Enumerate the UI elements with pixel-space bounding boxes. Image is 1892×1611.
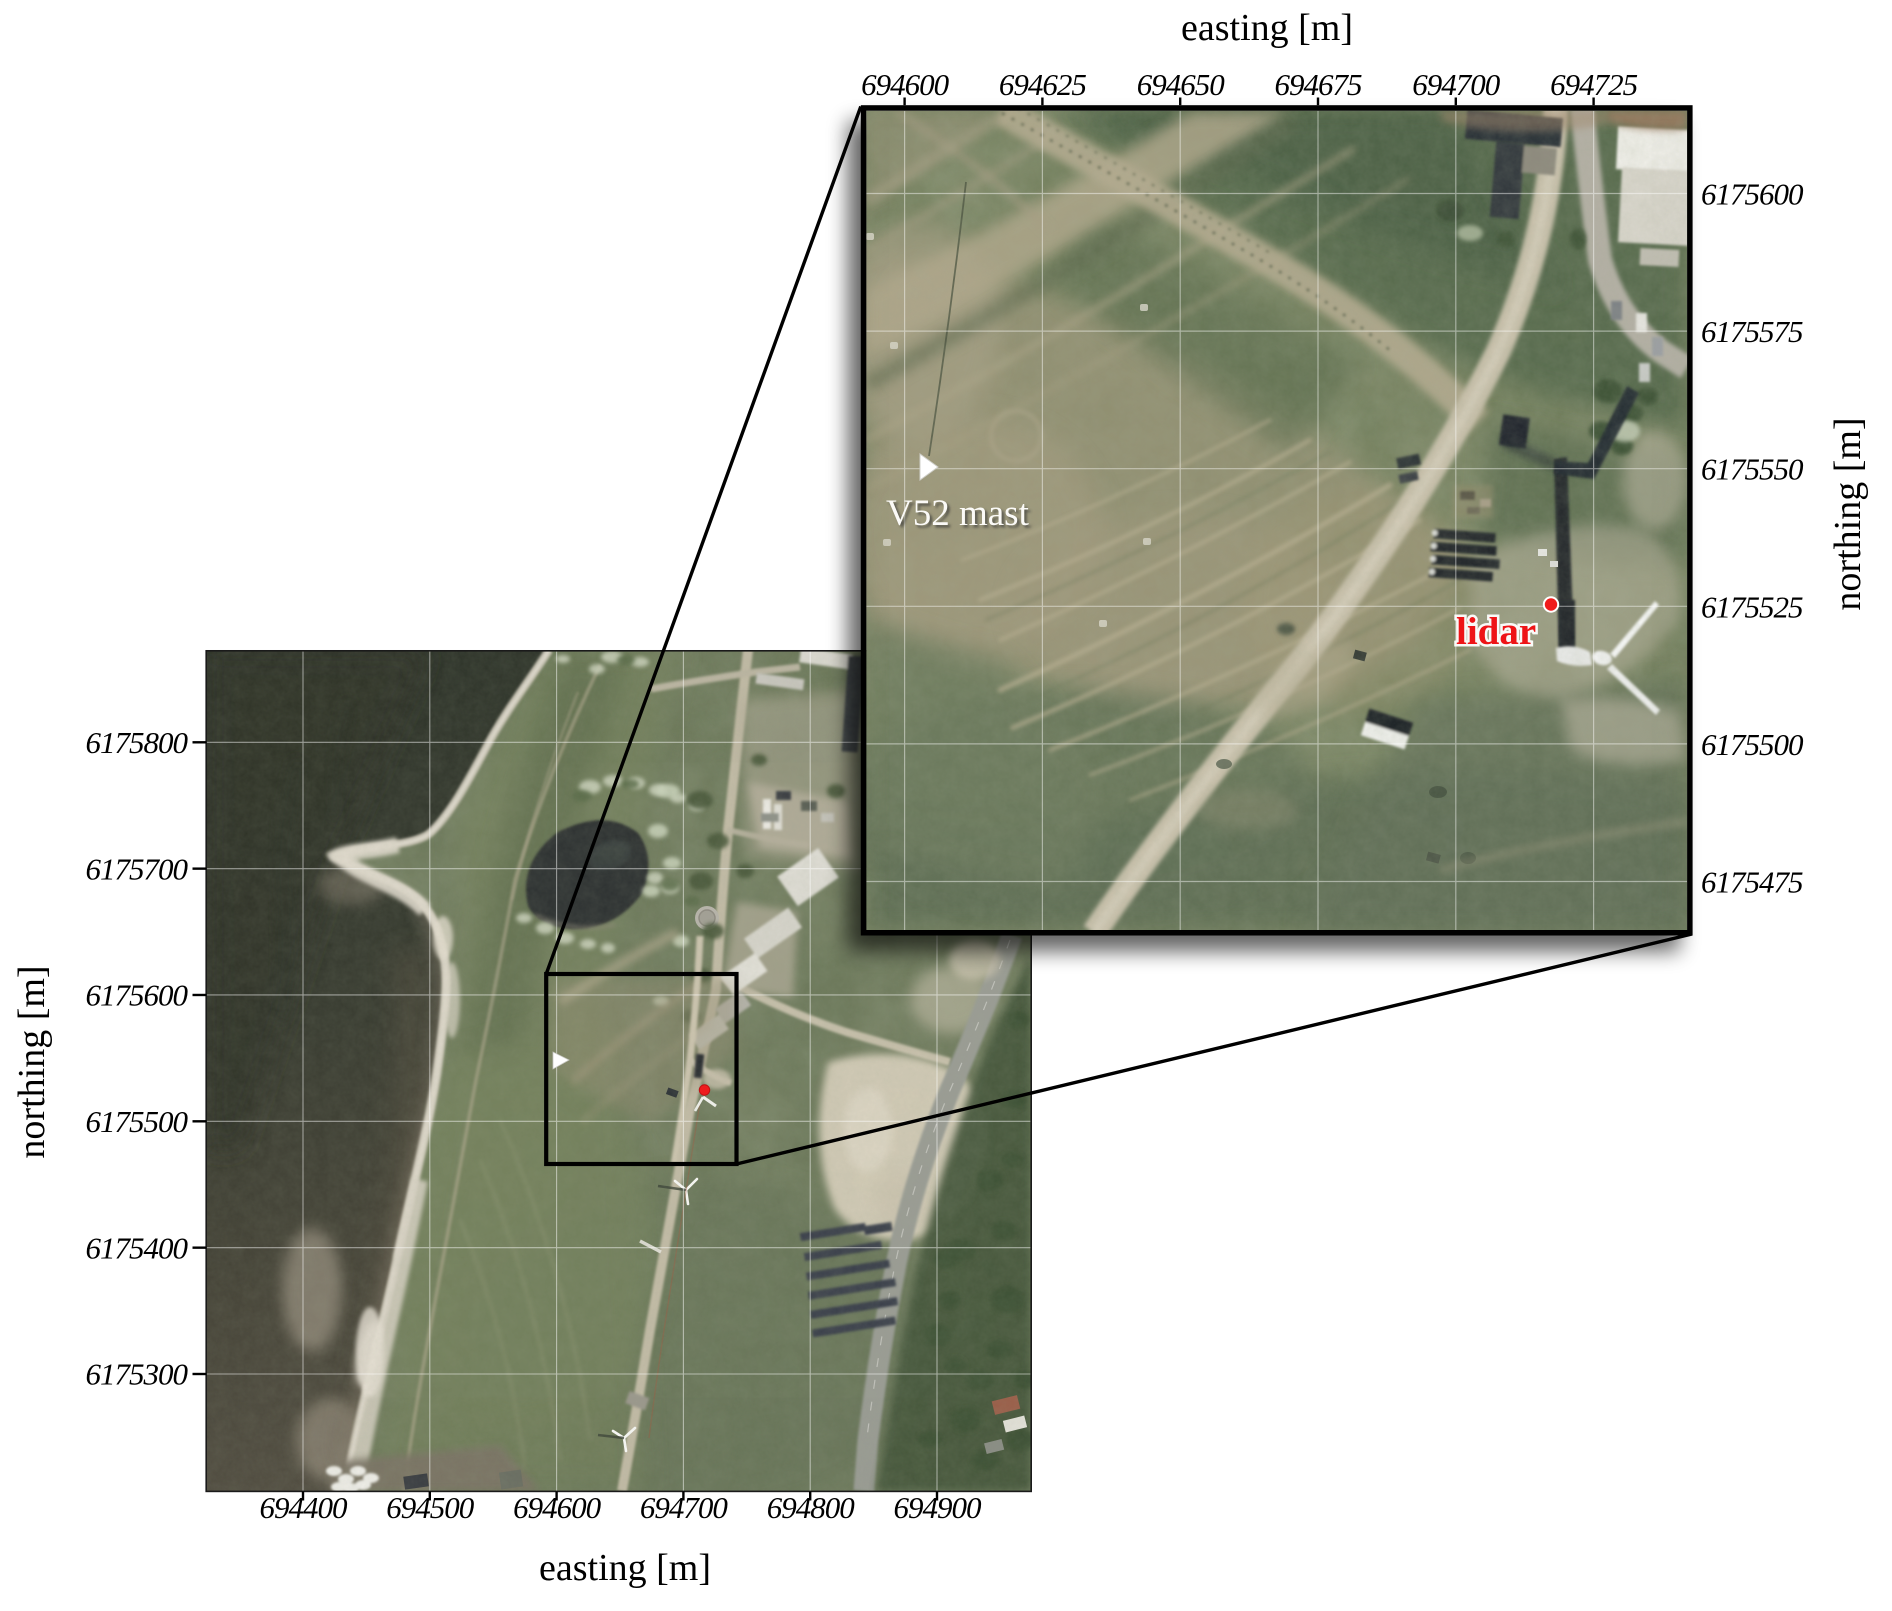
svg-text:694650: 694650 xyxy=(1137,67,1226,102)
svg-text:694500: 694500 xyxy=(386,1490,475,1525)
svg-text:6175600: 6175600 xyxy=(1701,177,1804,212)
svg-text:easting [m]: easting [m] xyxy=(539,1547,711,1589)
svg-text:694400: 694400 xyxy=(260,1490,349,1525)
svg-text:6175575: 6175575 xyxy=(1701,314,1803,349)
svg-text:6175400: 6175400 xyxy=(86,1230,189,1265)
svg-text:northing [m]: northing [m] xyxy=(1827,417,1869,610)
svg-text:694625: 694625 xyxy=(999,67,1087,102)
svg-text:lidar: lidar xyxy=(1456,610,1536,653)
svg-text:easting [m]: easting [m] xyxy=(1181,7,1353,49)
svg-text:6175800: 6175800 xyxy=(86,725,189,760)
svg-text:6175700: 6175700 xyxy=(86,851,189,886)
svg-text:6175475: 6175475 xyxy=(1701,865,1803,900)
svg-text:694700: 694700 xyxy=(640,1490,729,1525)
svg-text:694700: 694700 xyxy=(1412,67,1501,102)
svg-text:694900: 694900 xyxy=(894,1490,983,1525)
svg-text:694600: 694600 xyxy=(513,1490,602,1525)
svg-text:6175500: 6175500 xyxy=(86,1104,189,1139)
svg-text:6175600: 6175600 xyxy=(86,978,189,1013)
svg-text:6175550: 6175550 xyxy=(1701,452,1804,487)
svg-text:6175300: 6175300 xyxy=(86,1357,189,1392)
svg-text:694675: 694675 xyxy=(1275,67,1363,102)
svg-text:V52 mast: V52 mast xyxy=(886,493,1030,534)
svg-text:694600: 694600 xyxy=(861,67,950,102)
svg-text:694800: 694800 xyxy=(767,1490,856,1525)
svg-text:6175525: 6175525 xyxy=(1701,589,1803,624)
svg-text:northing [m]: northing [m] xyxy=(11,965,53,1158)
svg-text:6175500: 6175500 xyxy=(1701,727,1804,762)
svg-text:694725: 694725 xyxy=(1550,67,1638,102)
